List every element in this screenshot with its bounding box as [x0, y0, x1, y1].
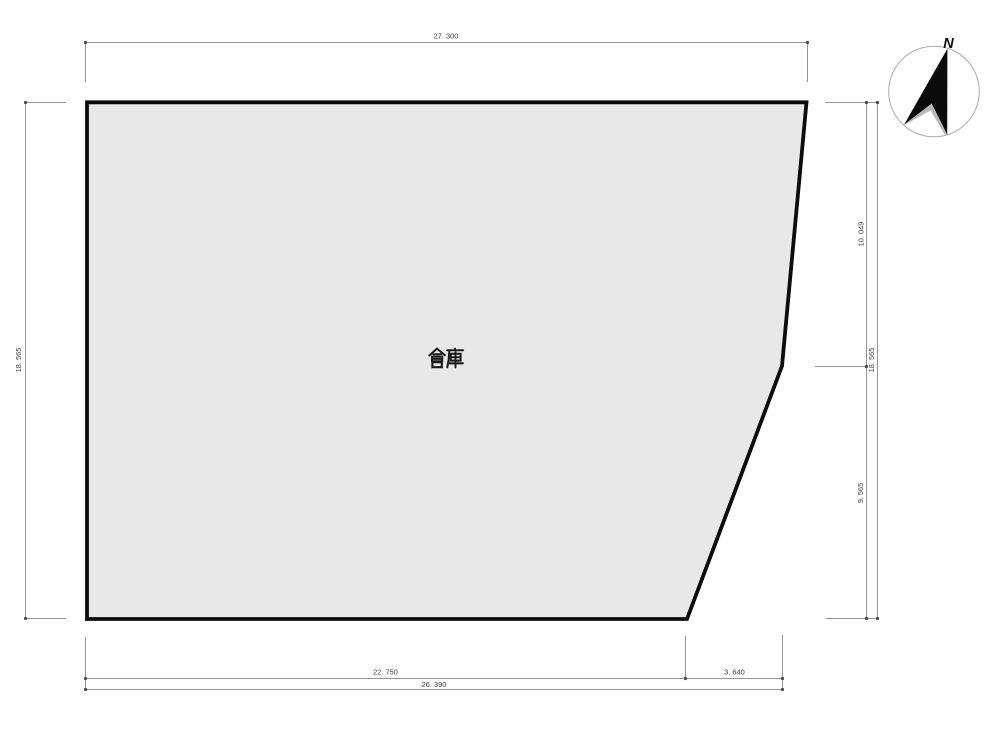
svg-text:27. 300: 27. 300	[434, 32, 459, 41]
svg-text:26. 390: 26. 390	[422, 680, 447, 689]
svg-text:N: N	[943, 36, 954, 52]
svg-text:18. 565: 18. 565	[867, 348, 876, 373]
svg-text:22. 750: 22. 750	[373, 668, 398, 677]
svg-text:18. 565: 18. 565	[14, 348, 23, 373]
svg-text:10. 049: 10. 049	[857, 222, 866, 247]
svg-text:3. 640: 3. 640	[724, 668, 745, 677]
svg-text:9. 565: 9. 565	[856, 483, 865, 504]
